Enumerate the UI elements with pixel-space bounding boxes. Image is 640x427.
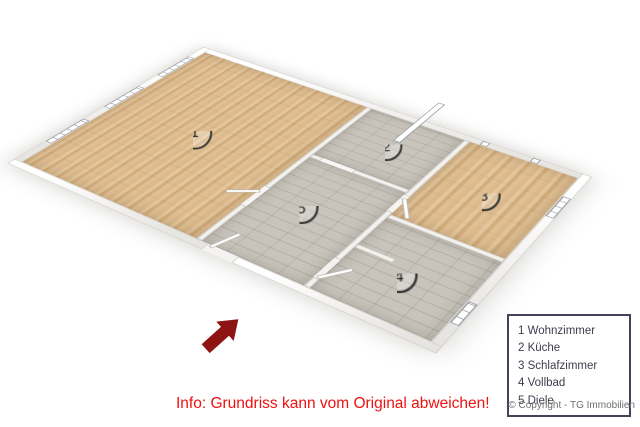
legend-item: 2 Küche [518,340,620,357]
legend-item: 4 Vollbad [518,375,620,392]
floorplan-page: 1 2 3 4 5 Info: Grundriss kann vom Origi… [0,0,640,427]
legend-item: 3 Schlafzimmer [518,358,620,375]
room-number: 2 [383,138,391,154]
disclaimer-text: Info: Grundriss kann vom Original abweic… [176,395,490,413]
copyright-text: © Copyright - TG Immobilien [508,400,635,411]
legend-item: 1 Wohnzimmer [518,323,620,340]
floorplan-3d: 1 2 3 4 5 [7,47,592,354]
window-icon [546,196,572,219]
room-number: 1 [190,124,198,141]
room-number: 5 [297,199,306,216]
room-number: 4 [394,266,403,285]
entrance-arrow-icon [196,308,248,360]
room-number: 3 [479,186,488,203]
